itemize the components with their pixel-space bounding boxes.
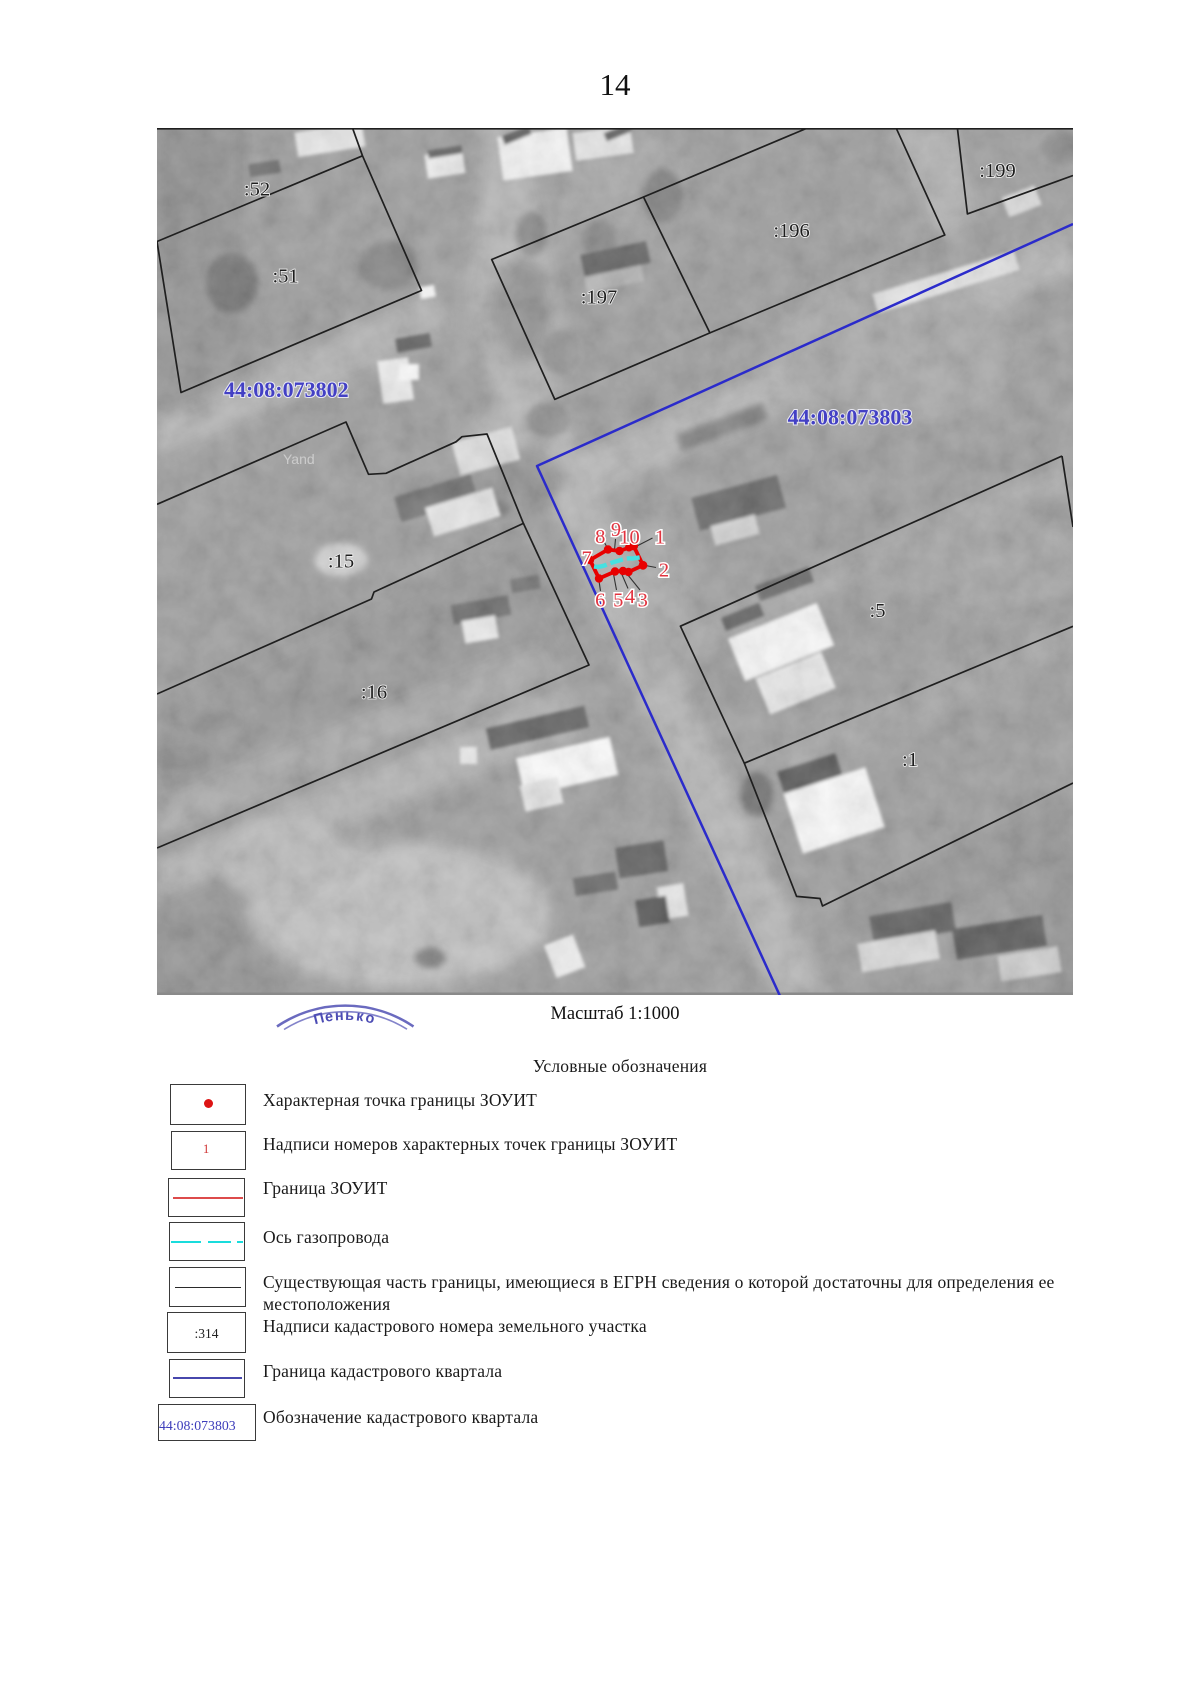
svg-text:8: 8 — [595, 526, 605, 548]
svg-text::52: :52 — [244, 179, 270, 201]
svg-text::199: :199 — [979, 160, 1015, 182]
svg-text:2: 2 — [659, 560, 669, 582]
svg-text:44:08:073802: 44:08:073802 — [224, 377, 349, 402]
svg-text:н: н — [334, 1008, 344, 1024]
svg-text:3: 3 — [638, 590, 648, 612]
svg-text::15: :15 — [328, 551, 354, 573]
svg-text::16: :16 — [361, 682, 387, 704]
svg-text:е: е — [324, 1009, 334, 1026]
svg-text:о: о — [364, 1010, 376, 1028]
svg-text:10: 10 — [619, 527, 640, 549]
svg-text::1: :1 — [902, 749, 918, 771]
svg-text:6: 6 — [595, 590, 605, 612]
svg-text:44:08:073803: 44:08:073803 — [788, 405, 913, 430]
svg-text::5: :5 — [870, 600, 886, 622]
svg-text:7: 7 — [581, 548, 591, 570]
svg-text:Yand: Yand — [283, 451, 315, 467]
svg-text::196: :196 — [773, 220, 809, 242]
svg-text:5: 5 — [613, 590, 623, 612]
svg-text::51: :51 — [272, 266, 298, 288]
svg-text:4: 4 — [625, 586, 635, 608]
svg-text:1: 1 — [655, 527, 665, 549]
svg-text:ь: ь — [345, 1008, 355, 1024]
svg-text::197: :197 — [581, 287, 617, 309]
